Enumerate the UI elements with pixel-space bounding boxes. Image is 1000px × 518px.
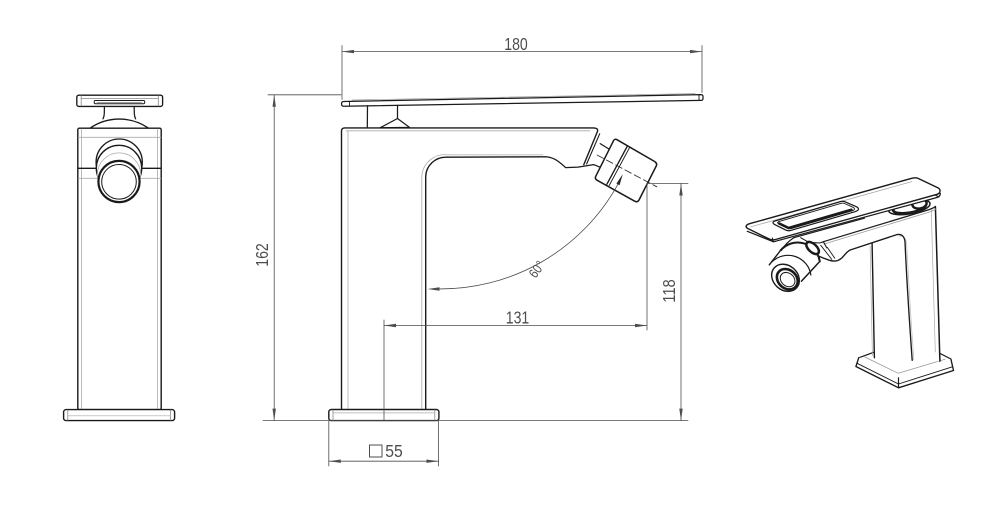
svg-text:118: 118	[659, 279, 679, 303]
svg-text:60°: 60°	[526, 258, 548, 281]
svg-text:162: 162	[252, 243, 272, 267]
svg-text:55: 55	[385, 441, 403, 461]
svg-text:131: 131	[506, 308, 530, 328]
svg-text:180: 180	[504, 34, 528, 54]
